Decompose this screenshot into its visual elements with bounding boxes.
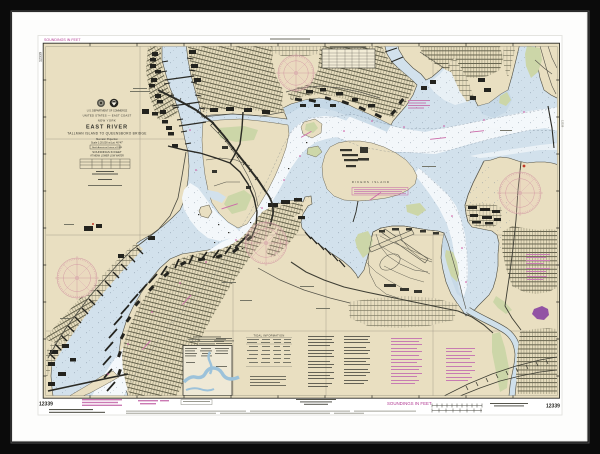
svg-text:SOUNDINGS IN FEET: SOUNDINGS IN FEET — [92, 150, 122, 154]
svg-text:NEW YORK: NEW YORK — [98, 119, 116, 123]
svg-text:SOUNDINGS IN FEET: SOUNDINGS IN FEET — [44, 38, 81, 42]
svg-text:12339: 12339 — [39, 402, 53, 408]
svg-text:12339: 12339 — [561, 120, 565, 128]
svg-text:EAST RIVER: EAST RIVER — [86, 125, 128, 131]
svg-text:SOUNDINGS IN FEET: SOUNDINGS IN FEET — [387, 401, 432, 406]
svg-text:TIDAL INFORMATION: TIDAL INFORMATION — [253, 334, 284, 338]
svg-text:TALLMAN ISLAND TO QUEENSBORO B: TALLMAN ISLAND TO QUEENSBORO BRIDGE — [67, 131, 146, 135]
svg-text:AT MEAN LOWER LOW WATER: AT MEAN LOWER LOW WATER — [90, 154, 124, 157]
svg-text:12339: 12339 — [39, 52, 43, 62]
svg-text:Scale 1:20,000 at Lat. 40°47': Scale 1:20,000 at Lat. 40°47' — [91, 141, 124, 144]
svg-text:North American Datum of 1983: North American Datum of 1983 — [92, 146, 123, 149]
svg-text:UNITED STATES — EAST COAST: UNITED STATES — EAST COAST — [83, 114, 132, 118]
svg-text:U.S. DEPARTMENT OF COMMERCE: U.S. DEPARTMENT OF COMMERCE — [87, 110, 128, 113]
svg-text:RIKERS ISLAND: RIKERS ISLAND — [352, 180, 390, 184]
svg-text:12339: 12339 — [546, 404, 560, 410]
